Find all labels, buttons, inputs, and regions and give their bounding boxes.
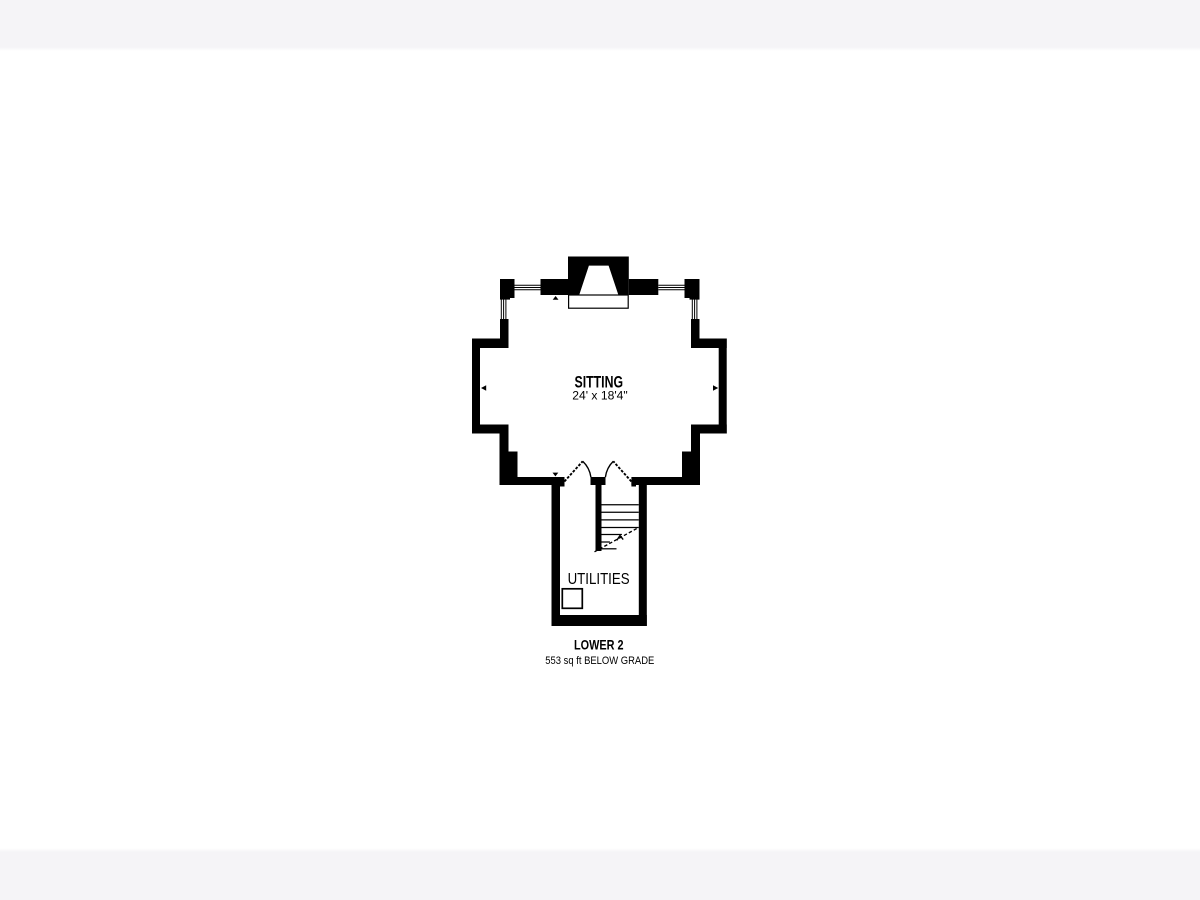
svg-text:LOWER 2: LOWER 2	[574, 637, 624, 653]
svg-text:553 sq ft BELOW GRADE: 553 sq ft BELOW GRADE	[545, 655, 654, 667]
svg-text:24' x 18'4": 24' x 18'4"	[572, 390, 628, 403]
svg-text:UTILITIES: UTILITIES	[568, 571, 630, 588]
